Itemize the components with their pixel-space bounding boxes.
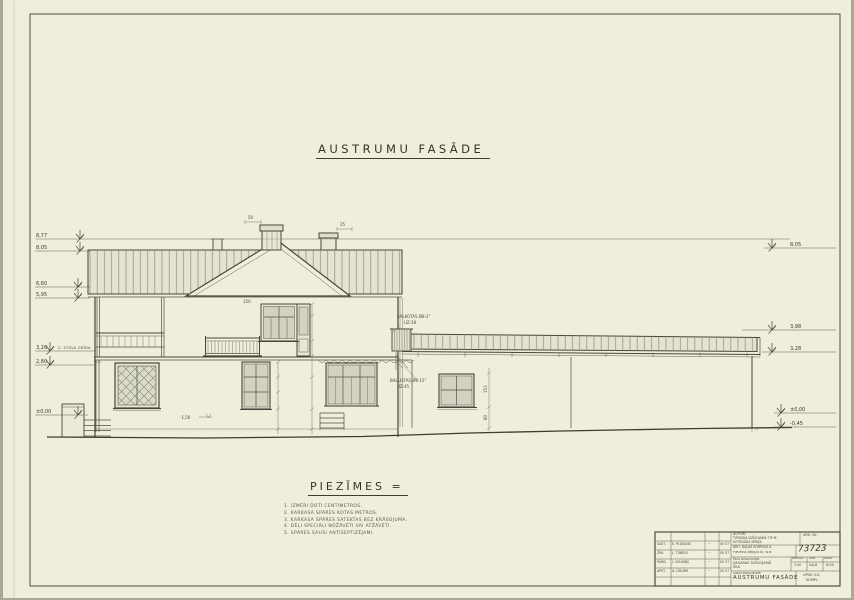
drawing-sheet: 50 25: [0, 0, 854, 600]
level-value: 5,95: [36, 292, 47, 298]
signature-cell: ~: [708, 551, 711, 555]
balcony-door: [297, 304, 310, 356]
level-value: 3,28: [36, 345, 47, 351]
titleblock-org-line2: KOMPL.: [806, 579, 819, 583]
note-item: 5. SPĀRES SAUSI ANTISEPTIZĒJAMI.: [284, 531, 407, 538]
dim-chimney2: 25: [340, 222, 346, 227]
titleblock-korpuss-line1: ARH. DAĻAS KORPUSS A: [733, 546, 771, 550]
level-value: -0,45: [790, 421, 803, 427]
signature-cell: K. PLŪKSNE: [672, 542, 691, 546]
lattice-window: [113, 363, 161, 411]
level-value: 8,77: [36, 233, 47, 239]
signature-cell: ~: [708, 569, 711, 573]
center-window: [240, 362, 272, 410]
level-label: 2. STĀVA GRĪDA: [58, 345, 91, 350]
level-value: 3,28: [790, 346, 801, 352]
dim-chimney1: 50: [248, 215, 254, 220]
level-value: ±0,00: [36, 409, 51, 415]
note-item: 1. IZMĒRI DOTI CENTIMETROS.: [284, 504, 407, 511]
titleblock-doc-number: 73723: [798, 545, 827, 556]
titleblock-sheet-name: AUSTRUMU FASĀDE: [733, 576, 798, 582]
bracket-note-line2: UZ-45: [397, 384, 410, 389]
titleblock-sheet-value: UA-8: [809, 564, 817, 568]
vent-pipe: [211, 239, 224, 250]
roof-note-line2: UZ-28: [404, 320, 417, 325]
dim-gable: 150.: [243, 299, 252, 304]
signature-cell: ~: [708, 560, 711, 564]
signature-cell: L. TŪBELE: [672, 551, 688, 555]
titleblock-sheets-value: N:20: [826, 564, 834, 568]
chimney-1: [260, 225, 283, 250]
titleblock-korpuss-line2: TIPVEIDA SĒRIJAS Nr. W-N: [733, 551, 771, 554]
titleblock-object-line2: ĒKA: [733, 566, 740, 570]
signature-cell: VII 57: [720, 551, 729, 555]
level-value: 8,05: [790, 242, 801, 248]
wing-dim1: 153: [483, 385, 488, 393]
page-title: AUSTRUMU FASĀDE: [316, 142, 490, 159]
signature-cell: VII 57: [720, 542, 729, 546]
level-value: ±0,00: [790, 407, 805, 413]
signature-cell: ~: [708, 542, 711, 546]
signature-cell: VII 57: [720, 569, 729, 573]
signature-cell: PĀRB.: [657, 560, 667, 564]
titleblock-sheet-label: LAPA: [809, 558, 815, 561]
signature-cell: J. CELMIŅŠ: [672, 560, 689, 564]
elevation-drawing: 50 25: [0, 0, 854, 600]
titleblock-scale-label: MĒROGS: [792, 558, 803, 561]
right-window: [324, 363, 379, 406]
wing-dim2: 80: [483, 414, 488, 420]
dim-ground: -1,50: [180, 415, 191, 420]
signature-cell: ZĪM.: [657, 551, 664, 555]
level-value: 2,80: [36, 359, 47, 365]
signature-cell: APST.: [657, 569, 666, 573]
paper: [3, 0, 851, 598]
wing-window: [437, 374, 477, 410]
titleblock-scale-value: 1:50: [794, 564, 801, 568]
signature-cell: VII 57: [720, 560, 729, 564]
titleblock-arh-nr-label: ARH. Nr.: [803, 534, 817, 538]
titleblock-sheets-label: LAPAS: [824, 558, 832, 561]
titleblock-project-line2: KOTEDŽAS SĒRIJA: [733, 541, 762, 545]
bracket-note-line1: BALLISTAS Ø6-15": [390, 378, 427, 383]
notes-heading: PIEZĪMES =: [308, 480, 408, 496]
level-value: 3,98: [790, 324, 801, 330]
level-value: 8,05: [36, 245, 47, 251]
signature-cell: SAST.: [657, 542, 666, 546]
chimney-2: [319, 233, 338, 250]
note-item: 2. KARKASA SPĀRES KOTAS METROS.: [284, 511, 407, 518]
signature-cell: A. LĪDUMS: [672, 569, 688, 573]
roof-note-line1: ŠALKOTAS Ø8-2": [397, 314, 430, 319]
notes-list: 1. IZMĒRI DOTI CENTIMETROS.2. KARKASA SP…: [284, 504, 407, 538]
level-value: 6,60: [36, 281, 47, 287]
upper-window: [261, 304, 297, 341]
